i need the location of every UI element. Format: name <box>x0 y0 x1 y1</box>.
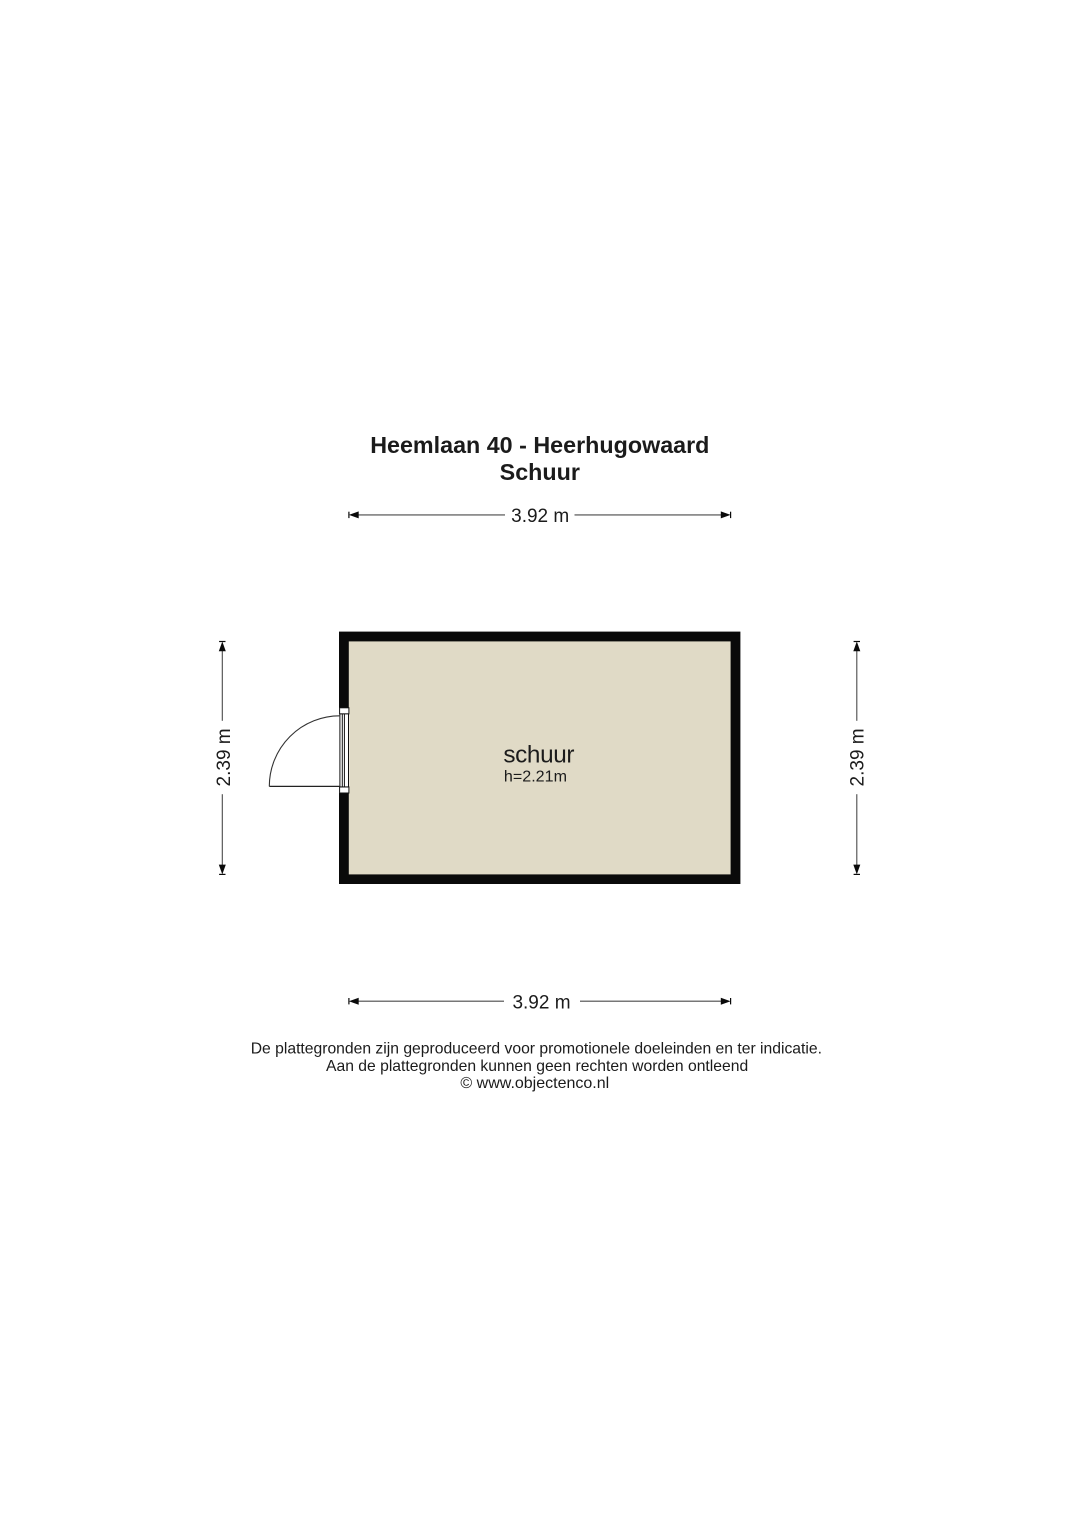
svg-text:schuur: schuur <box>503 742 574 769</box>
svg-text:3.92 m: 3.92 m <box>511 506 569 527</box>
svg-text:h=2.21m: h=2.21m <box>504 768 567 786</box>
svg-text:Schuur: Schuur <box>500 459 580 485</box>
svg-text:2.39 m: 2.39 m <box>214 728 235 786</box>
svg-text:De plattegronden zijn geproduc: De plattegronden zijn geproduceerd voor … <box>251 1040 822 1057</box>
svg-text:2.39 m: 2.39 m <box>848 728 869 786</box>
svg-text:Aan de plattegronden kunnen ge: Aan de plattegronden kunnen geen rechten… <box>326 1058 748 1075</box>
svg-text:Heemlaan 40 - Heerhugowaard: Heemlaan 40 - Heerhugowaard <box>370 432 709 458</box>
svg-text:© www.objectenco.nl: © www.objectenco.nl <box>460 1075 609 1092</box>
svg-text:3.92 m: 3.92 m <box>512 993 570 1014</box>
